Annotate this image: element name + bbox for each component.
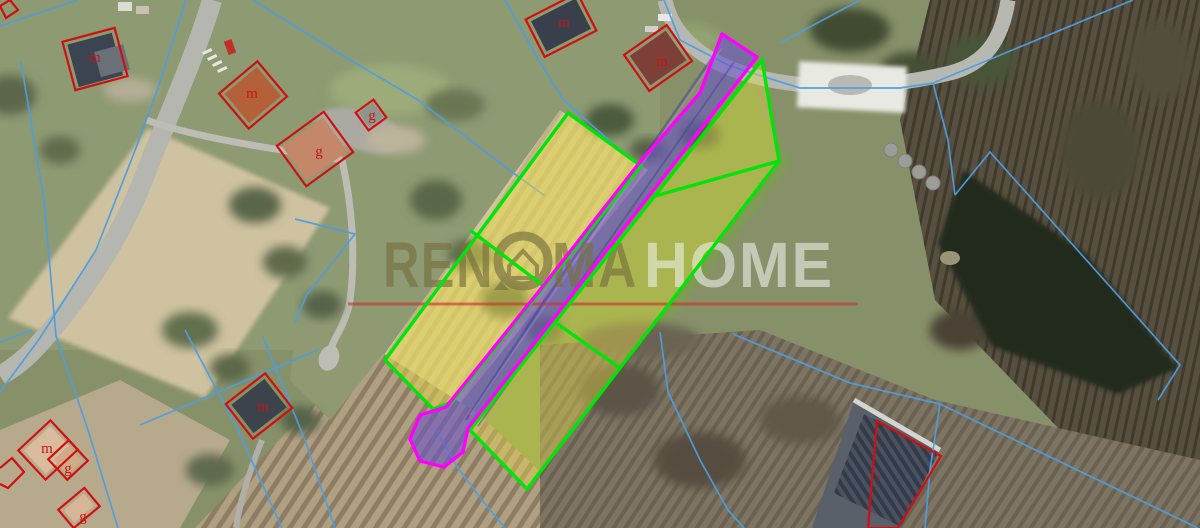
map-canvas: m m g g m m m g g m i REN MA HOME: [0, 0, 1200, 528]
building-label: g: [79, 509, 87, 525]
roof-stain: [828, 75, 872, 95]
building-label: i: [878, 473, 881, 484]
silo: [898, 154, 912, 168]
building-label: g: [64, 461, 72, 477]
silo: [926, 176, 940, 190]
aerial-cadastral-photo: m m g g m m m g g m i REN MA HOME: [0, 0, 1200, 528]
watermark: REN MA HOME: [348, 229, 858, 304]
car-gray: [645, 26, 658, 32]
building-label: m: [257, 399, 269, 415]
building-label: m: [89, 50, 101, 66]
building-label: g: [315, 144, 323, 160]
silo: [912, 165, 926, 179]
building-label: m: [246, 86, 258, 102]
truck-white: [118, 2, 132, 11]
building-label: g: [368, 108, 376, 124]
building-label: m: [656, 54, 668, 70]
silo: [884, 143, 898, 157]
watermark-text-home: HOME: [644, 229, 834, 301]
truck-tan: [136, 6, 149, 14]
building-label: m: [558, 15, 570, 31]
building-label: m: [41, 441, 53, 457]
pond-beach: [940, 251, 960, 265]
